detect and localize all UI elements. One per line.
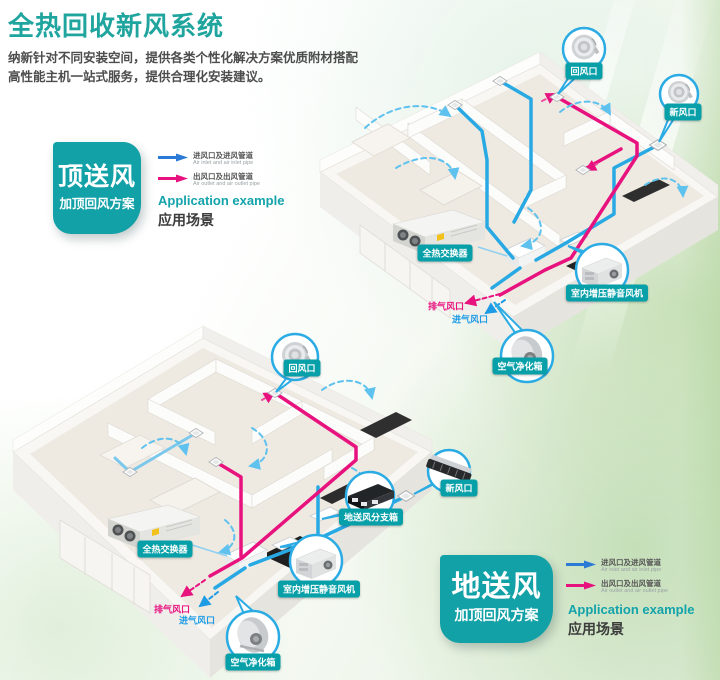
application-scene-bottom: 应用场景 [568, 619, 624, 639]
outlet-arrow-icon [566, 581, 596, 590]
legend-outlet-row: 出风口及出风管道 Air outlet and air outlet pipe [158, 172, 260, 188]
label-booster-fan-bottom: 室内增压静音风机 [278, 581, 360, 598]
inlet-arrow-icon [158, 153, 188, 162]
scheme-top-name: 顶送风 [53, 165, 141, 190]
legend-bottom: 进风口及进风管道 Air inlet and air inlet pipe 出风… [566, 558, 668, 600]
scheme-badge-bottom: 地送风 加顶回风方案 [440, 555, 553, 643]
application-scene-top: 应用场景 [158, 210, 214, 230]
top-house [320, 28, 718, 382]
application-example-top: Application example [158, 193, 284, 208]
application-example-bottom: Application example [568, 602, 694, 617]
label-branch-box-bottom: 地送风分支箱 [339, 509, 403, 526]
label-return-vent-top: 回风口 [565, 63, 602, 80]
page-title: 全热回收新风系统 [8, 6, 358, 43]
scheme-bottom-name: 地送风 [440, 573, 553, 602]
legend-inlet-row: 进风口及进风管道 Air inlet and air inlet pipe [566, 558, 668, 574]
label-heat-exchanger-top: 全热交换器 [417, 245, 472, 262]
label-intake-port-bottom: 进气风口 [179, 614, 215, 627]
label-booster-fan-top: 室内增压静音风机 [566, 285, 648, 302]
label-heat-exchanger-bottom: 全热交换器 [137, 541, 192, 558]
scheme-top-plan: 加顶回风方案 [53, 193, 141, 212]
legend-inlet-row: 进风口及进风管道 Air inlet and air inlet pipe [158, 151, 260, 167]
legend-top: 进风口及进风管道 Air inlet and air inlet pipe 出风… [158, 151, 260, 193]
label-return-vent-bottom: 回风口 [283, 360, 320, 377]
scheme-badge-top: 顶送风 加顶回风方案 [53, 142, 141, 234]
label-fresh-vent-top: 新风口 [664, 104, 701, 121]
label-purifier-bottom: 空气净化箱 [225, 654, 280, 671]
scheme-bottom-plan: 加顶回风方案 [440, 605, 553, 625]
legend-outlet-row: 出风口及出风管道 Air outlet and air outlet pipe [566, 579, 668, 595]
label-exhaust-port-top: 排气风口 [428, 300, 464, 313]
page-description: 纳新针对不同安装空间，提供各类个性化解决方案优质附材搭配 高性能主机一站式服务，… [8, 49, 358, 88]
outlet-arrow-icon [158, 174, 188, 183]
label-purifier-top: 空气净化箱 [492, 358, 547, 375]
bottom-house [13, 326, 474, 678]
header: 全热回收新风系统 纳新针对不同安装空间，提供各类个性化解决方案优质附材搭配 高性… [8, 6, 358, 88]
inlet-arrow-icon [566, 560, 596, 569]
label-intake-port-top: 进气风口 [452, 313, 488, 326]
label-fresh-vent-bottom: 新风口 [440, 480, 477, 497]
